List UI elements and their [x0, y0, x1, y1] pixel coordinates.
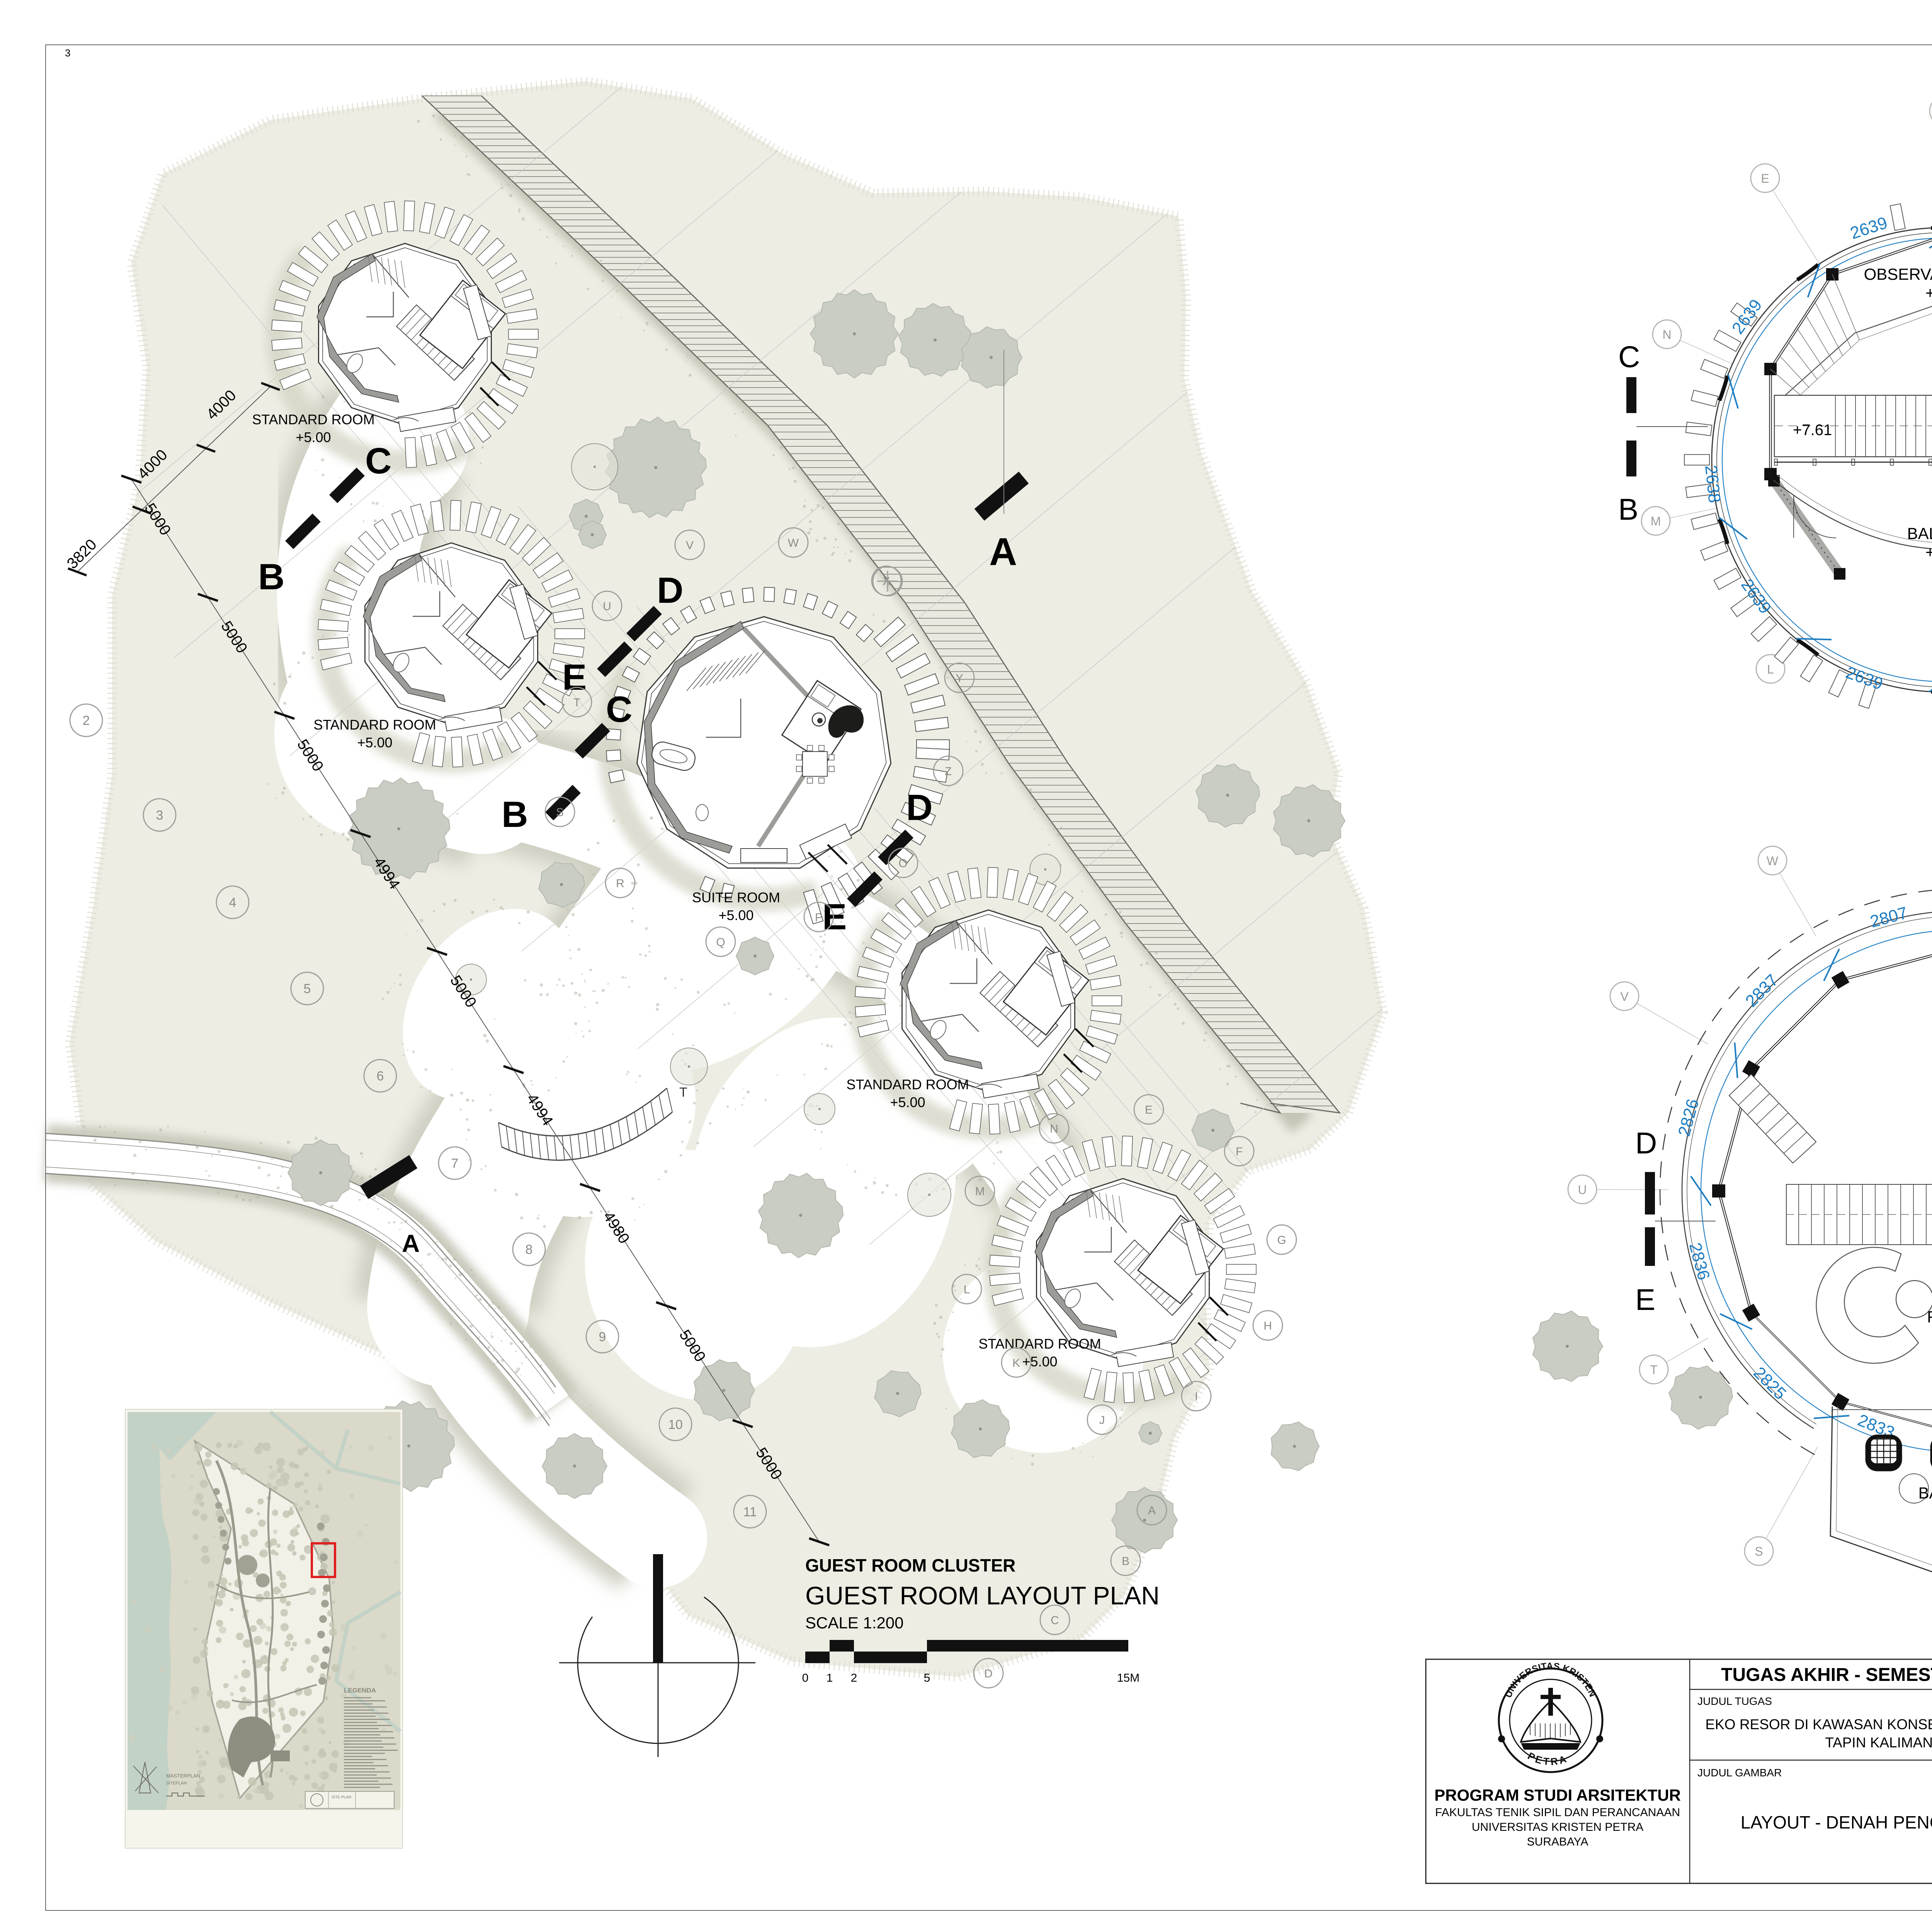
svg-text:A: A [402, 1230, 420, 1257]
svg-text:A: A [989, 530, 1017, 573]
svg-text:B: B [502, 794, 528, 835]
svg-text:Q: Q [716, 936, 725, 949]
svg-text:A: A [1148, 1504, 1156, 1517]
svg-text:E: E [822, 896, 847, 937]
svg-text:JUDUL TUGAS: JUDUL TUGAS [1697, 1695, 1772, 1707]
svg-text:6: 6 [377, 1069, 384, 1084]
svg-text:SITE PLAN: SITE PLAN [332, 1795, 351, 1800]
svg-text:TUGAS AKHIR - SEMESTER GENAP 2: TUGAS AKHIR - SEMESTER GENAP 2023/2024 [1721, 1665, 1932, 1685]
svg-text:E: E [1761, 172, 1769, 185]
svg-text:2: 2 [851, 1672, 857, 1684]
svg-text:LAYOUT - DENAH PENGINAPAN: LAYOUT - DENAH PENGINAPAN [1741, 1812, 1932, 1832]
svg-text:M: M [1651, 514, 1661, 528]
svg-text:O: O [898, 857, 907, 870]
svg-text:P: P [815, 911, 823, 924]
svg-text:U: U [1578, 1183, 1587, 1197]
svg-text:U: U [603, 600, 611, 613]
svg-text:+7.61: +7.61 [1793, 422, 1832, 439]
svg-text:UNIVERSITAS KRISTEN PETRA: UNIVERSITAS KRISTEN PETRA [1472, 1821, 1644, 1834]
svg-text:3: 3 [156, 808, 163, 823]
svg-text:7: 7 [451, 1156, 459, 1171]
svg-text:5: 5 [304, 981, 311, 996]
svg-text:H: H [1264, 1320, 1272, 1332]
svg-text:GUEST ROOM CLUSTER: GUEST ROOM CLUSTER [805, 1555, 1015, 1575]
svg-text:PROGRAM STUDI ARSITEKTUR: PROGRAM STUDI ARSITEKTUR [1434, 1786, 1681, 1804]
svg-text:SCALE 1:200: SCALE 1:200 [805, 1614, 904, 1632]
svg-text:15M: 15M [1117, 1672, 1139, 1684]
svg-text:L: L [964, 1283, 970, 1296]
svg-text:+5.00: +5.00 [1022, 1354, 1057, 1369]
svg-text:S: S [556, 806, 564, 819]
svg-text:J: J [1099, 1414, 1105, 1427]
svg-text:W: W [1767, 854, 1779, 868]
svg-text:MASTERPLAN: MASTERPLAN [166, 1773, 200, 1779]
svg-text:C: C [1051, 1614, 1059, 1627]
svg-text:5: 5 [924, 1672, 930, 1684]
svg-text:4: 4 [229, 895, 236, 910]
svg-text:Y: Y [956, 672, 963, 685]
svg-text:N: N [1662, 328, 1671, 342]
svg-text:STANDARD ROOM: STANDARD ROOM [252, 412, 374, 427]
svg-text:GUEST ROOM LAYOUT PLAN: GUEST ROOM LAYOUT PLAN [805, 1581, 1160, 1610]
svg-text:E: E [1635, 1283, 1655, 1317]
svg-text:STANDARD ROOM: STANDARD ROOM [978, 1336, 1101, 1352]
svg-text:+5.00: +5.00 [296, 429, 331, 445]
svg-text:11: 11 [743, 1505, 757, 1519]
svg-text:2: 2 [83, 713, 90, 728]
svg-text:SURABAYA: SURABAYA [1527, 1835, 1588, 1848]
svg-text:N: N [1050, 1123, 1058, 1135]
svg-text:10: 10 [668, 1417, 683, 1432]
svg-text:BALCONY: BALCONY [1918, 1484, 1932, 1502]
svg-text:OBSERVATION DECK: OBSERVATION DECK [1864, 265, 1932, 283]
svg-text:B: B [1122, 1555, 1129, 1568]
svg-text:+9.00: +9.00 [1925, 284, 1932, 302]
svg-text:+5.00: +5.00 [357, 735, 392, 750]
svg-text:F: F [1236, 1145, 1243, 1158]
svg-text:LEGENDA: LEGENDA [344, 1687, 376, 1694]
svg-text:Z: Z [945, 765, 952, 778]
svg-text:M: M [975, 1185, 985, 1198]
svg-text:SITEPLAN: SITEPLAN [166, 1781, 187, 1786]
svg-text:C: C [365, 441, 392, 481]
svg-text:E: E [1145, 1104, 1153, 1116]
svg-text:2638: 2638 [1701, 464, 1724, 503]
svg-text:V: V [1620, 990, 1629, 1004]
svg-text:0: 0 [802, 1672, 809, 1684]
svg-text:BALCONY: BALCONY [1907, 524, 1932, 543]
svg-text:V: V [686, 539, 694, 552]
svg-text:FAKULTAS TENIK SIPIL DAN PERAN: FAKULTAS TENIK SIPIL DAN PERANCANAAN [1435, 1806, 1680, 1819]
svg-text:D: D [906, 787, 933, 828]
svg-text:9: 9 [599, 1330, 606, 1344]
svg-text:+5.00: +5.00 [718, 907, 753, 923]
svg-text:T: T [573, 696, 580, 709]
svg-text:STANDARD ROOM: STANDARD ROOM [313, 717, 436, 733]
svg-text:L: L [1767, 662, 1774, 676]
svg-text:C: C [1618, 340, 1640, 374]
svg-text:EKO RESOR DI KAWASAN KONSERVAS: EKO RESOR DI KAWASAN KONSERVASI BEKANTAN… [1705, 1716, 1932, 1732]
svg-text:D: D [984, 1667, 993, 1680]
svg-text:STANDARD ROOM: STANDARD ROOM [846, 1077, 969, 1092]
svg-text:D: D [1635, 1126, 1657, 1160]
svg-text:TAPIN KALIMANTAN SELATAN: TAPIN KALIMANTAN SELATAN [1825, 1735, 1932, 1750]
svg-text:JUDUL GAMBAR: JUDUL GAMBAR [1697, 1767, 1782, 1779]
svg-text:W: W [788, 537, 799, 549]
svg-text:T: T [679, 1085, 687, 1100]
svg-text:SUITE ROOM: SUITE ROOM [692, 890, 780, 905]
svg-text:1: 1 [827, 1672, 833, 1684]
svg-text:S: S [1755, 1544, 1763, 1558]
svg-text:3: 3 [65, 47, 70, 59]
svg-text:T: T [1650, 1363, 1658, 1377]
svg-text:FAMILY ROOM: FAMILY ROOM [1927, 1308, 1932, 1326]
svg-text:D: D [657, 570, 684, 611]
svg-text:B: B [1618, 492, 1638, 526]
svg-text:I: I [1195, 1390, 1198, 1403]
svg-text:K: K [1012, 1357, 1020, 1369]
svg-text:8: 8 [526, 1242, 533, 1257]
svg-text:B: B [258, 556, 285, 597]
svg-text:R: R [616, 877, 624, 890]
svg-text:+5.00: +5.00 [890, 1094, 925, 1110]
svg-text:G: G [1277, 1234, 1286, 1247]
svg-text:C: C [606, 689, 633, 730]
svg-text:+7.80: +7.80 [1925, 543, 1932, 561]
